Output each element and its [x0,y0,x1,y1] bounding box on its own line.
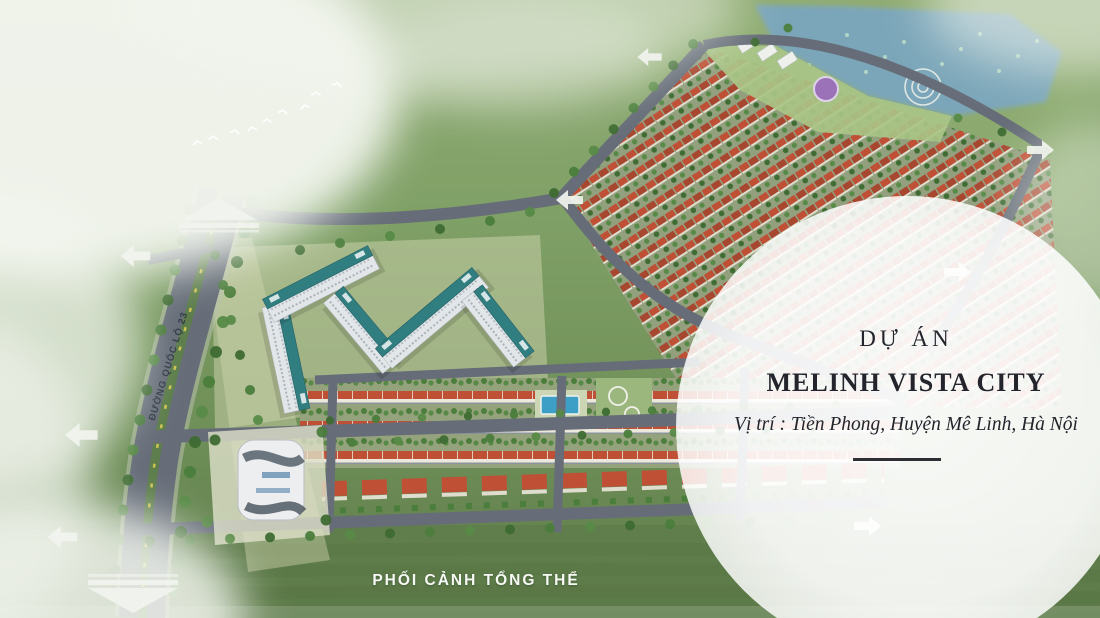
school-building [238,440,304,520]
divider-line [853,458,941,461]
project-name: MELINH VISTA CITY [700,368,1100,398]
rendering-caption: PHỐI CẢNH TỔNG THỂ [318,572,634,590]
project-location: Vị trí : Tiền Phong, Huyện Mê Linh, Hà N… [700,414,1100,436]
master-plan-slide: ĐƯỜNG QUỐC LỘ 23 DỰ ÁN MELINH VISTA CITY… [0,0,1100,618]
flower-roundabout [814,77,838,101]
project-label: DỰ ÁN [700,326,1100,352]
